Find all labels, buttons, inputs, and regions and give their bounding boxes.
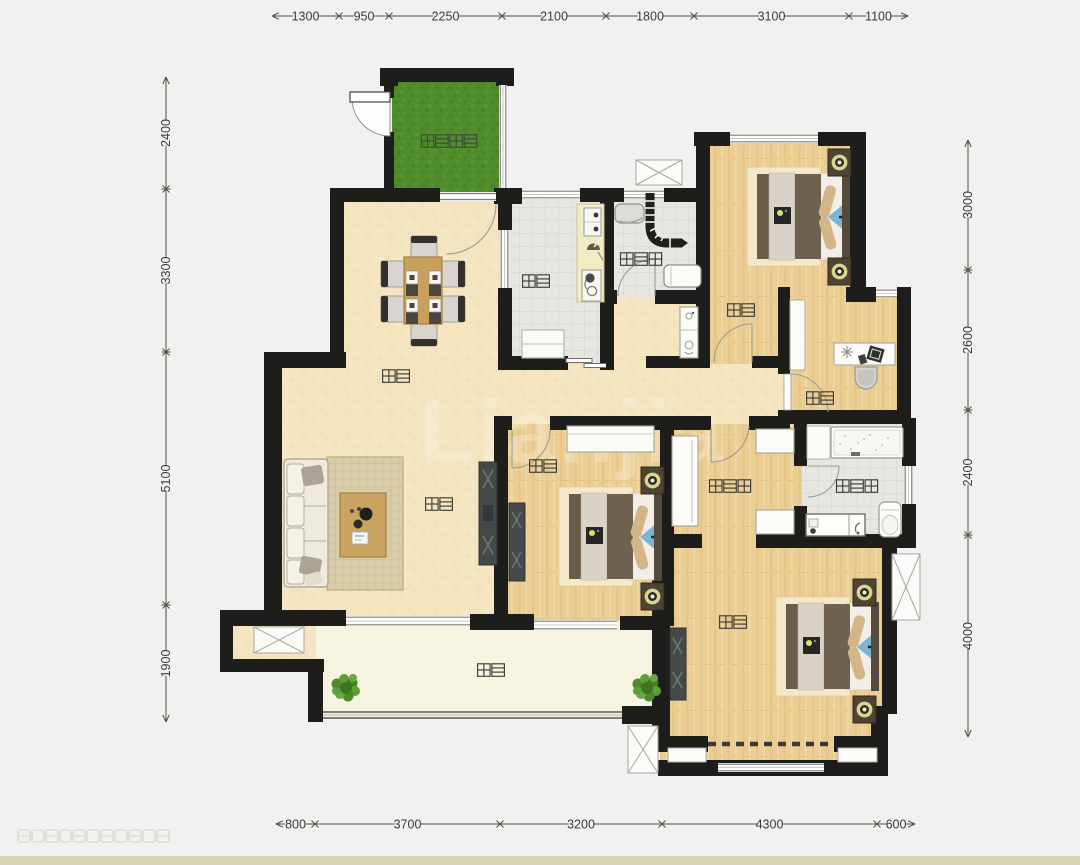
- svg-text:3200: 3200: [567, 818, 595, 832]
- svg-text:1900: 1900: [159, 650, 173, 678]
- svg-text:800: 800: [285, 818, 306, 832]
- svg-text:1800: 1800: [636, 10, 664, 24]
- svg-text:2400: 2400: [961, 459, 975, 487]
- svg-text:4300: 4300: [756, 818, 784, 832]
- svg-text:2400: 2400: [159, 119, 173, 147]
- svg-text:2250: 2250: [432, 10, 460, 24]
- svg-text:3300: 3300: [159, 257, 173, 285]
- svg-text:2600: 2600: [961, 326, 975, 354]
- svg-text:2100: 2100: [540, 10, 568, 24]
- svg-text:3100: 3100: [758, 10, 786, 24]
- svg-text:4000: 4000: [961, 622, 975, 650]
- svg-text:950: 950: [354, 10, 375, 24]
- svg-text:3000: 3000: [961, 191, 975, 219]
- svg-text:1300: 1300: [292, 10, 320, 24]
- svg-text:5100: 5100: [159, 465, 173, 493]
- svg-text:3700: 3700: [394, 818, 422, 832]
- svg-text:1100: 1100: [865, 10, 892, 24]
- svg-text:600: 600: [886, 818, 907, 832]
